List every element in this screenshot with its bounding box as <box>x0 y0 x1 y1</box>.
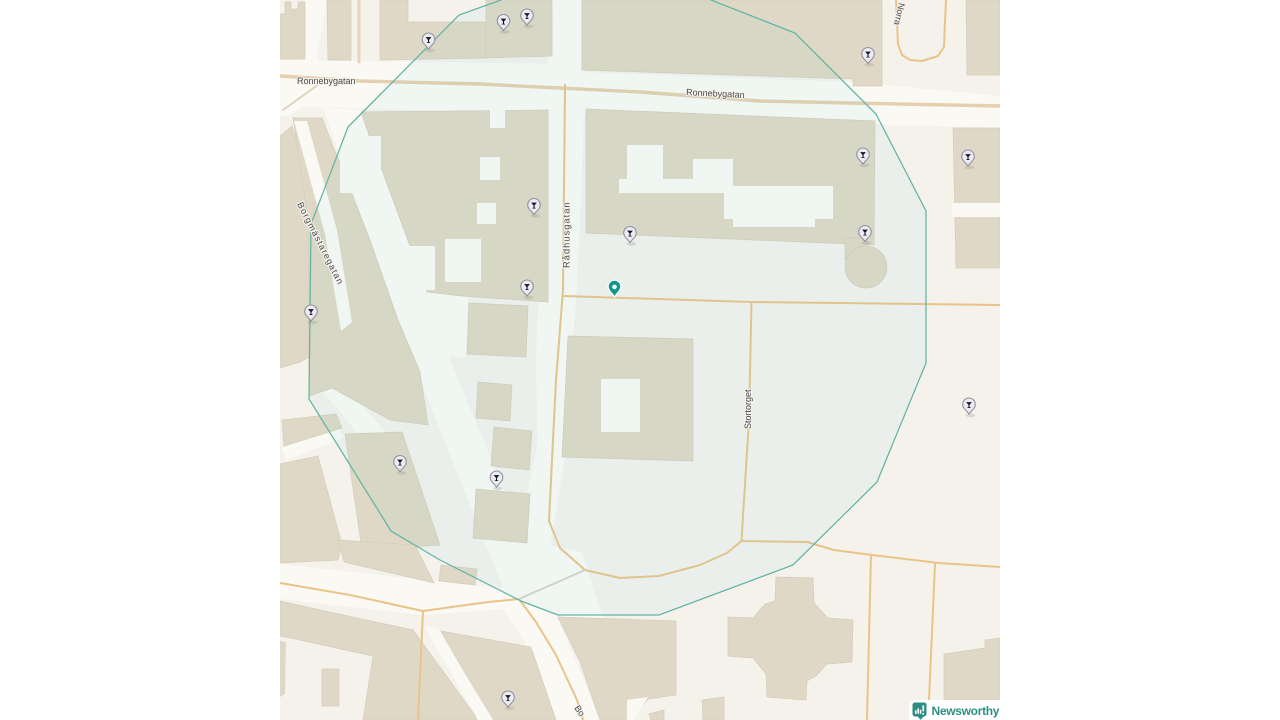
svg-text:Stortorget: Stortorget <box>743 389 753 429</box>
svg-text:Newsworthy: Newsworthy <box>932 704 1000 718</box>
svg-text:Ronnebygatan: Ronnebygatan <box>297 76 356 86</box>
svg-text:Rådhusgatan: Rådhusgatan <box>562 201 572 268</box>
